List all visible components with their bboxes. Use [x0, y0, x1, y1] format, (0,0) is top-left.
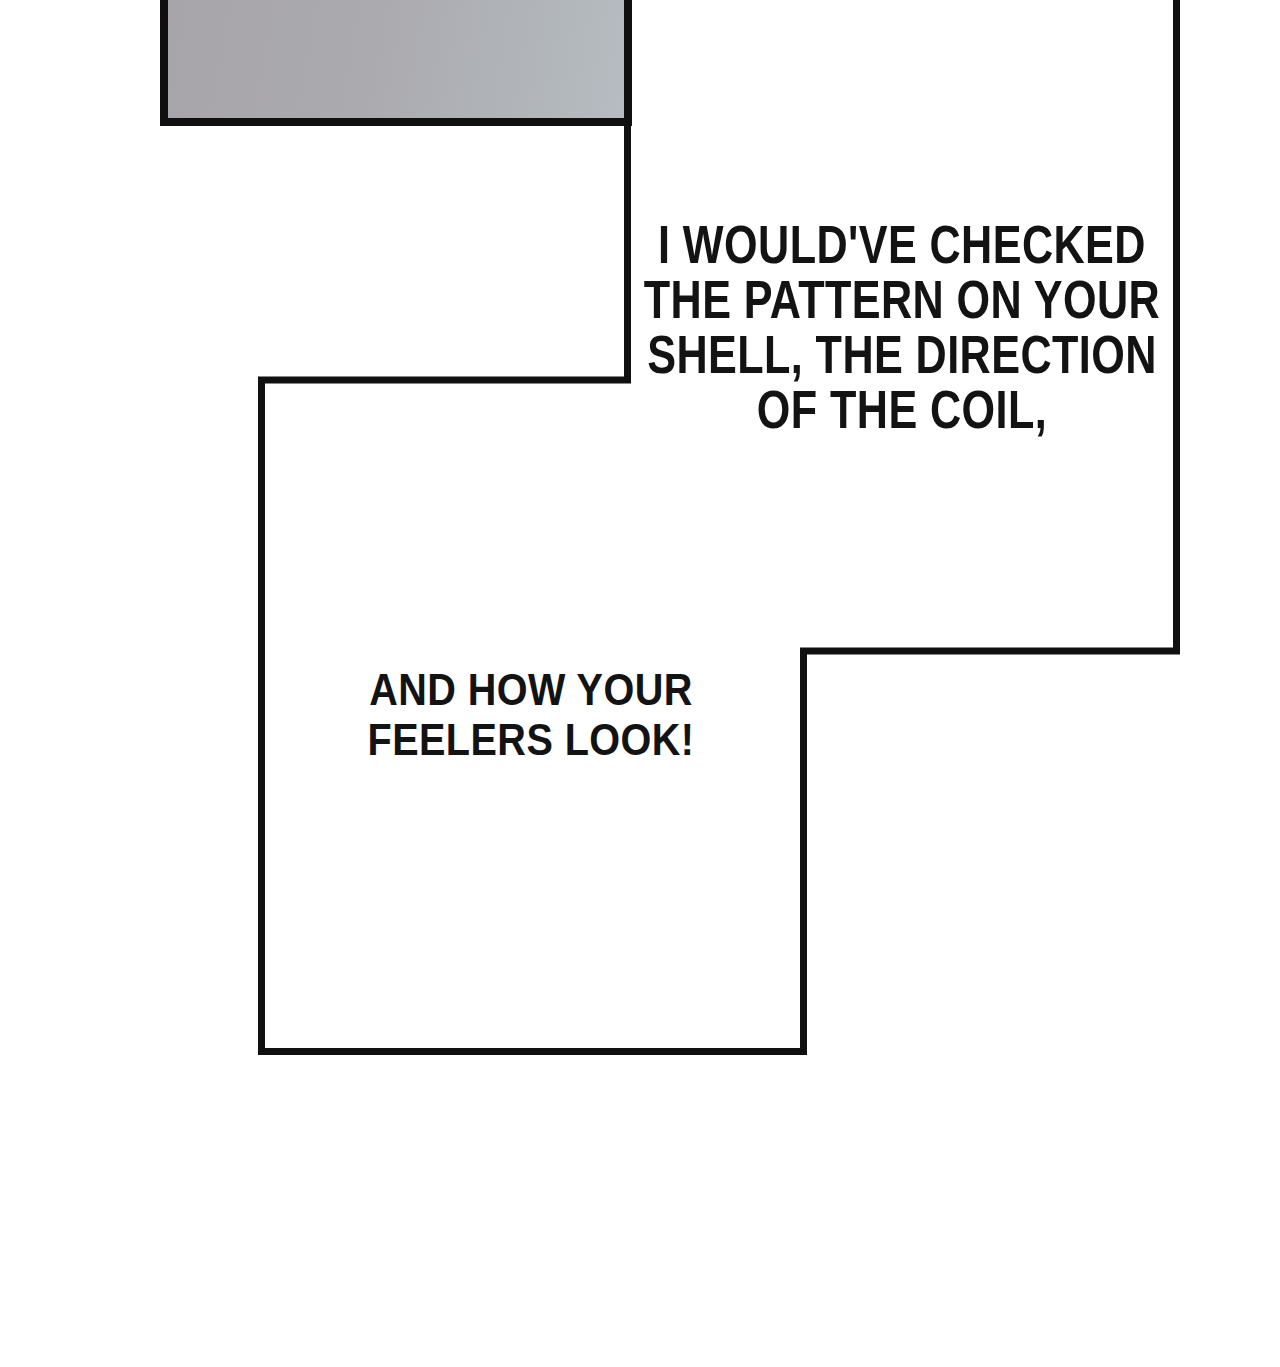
comic-page: I WOULD'VE CHECKED THE PATTERN ON YOUR S… — [0, 0, 1280, 1367]
dialogue-text-upper: I WOULD'VE CHECKED THE PATTERN ON YOUR S… — [622, 217, 1182, 437]
dialogue-text-lower: AND HOW YOUR FEELERS LOOK! — [311, 665, 751, 765]
panel-border-line — [262, 0, 1177, 1052]
